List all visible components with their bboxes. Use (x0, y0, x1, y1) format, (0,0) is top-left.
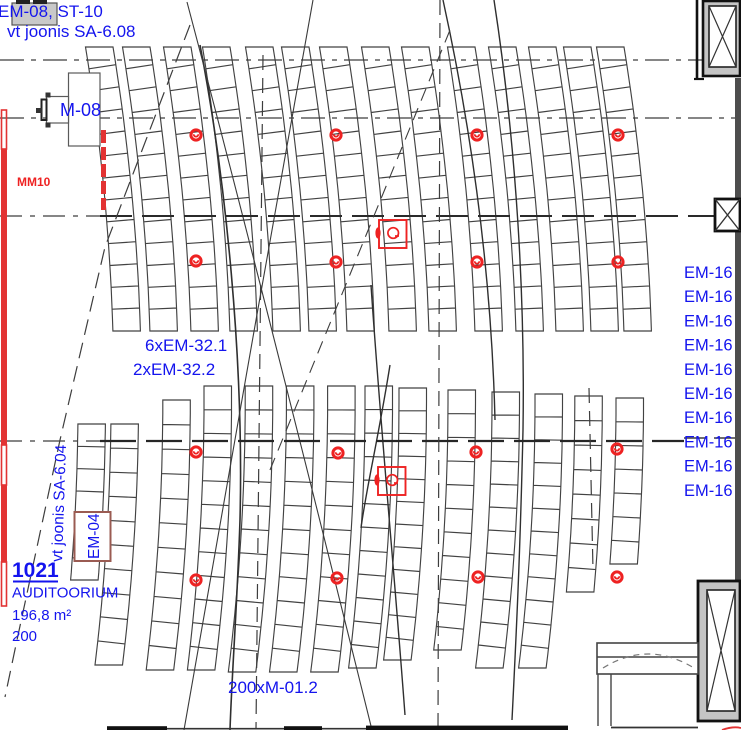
svg-text:EM-08, ST-10: EM-08, ST-10 (0, 2, 103, 21)
svg-text:2xEM-32.2: 2xEM-32.2 (133, 360, 215, 379)
svg-text:EM-16: EM-16 (684, 361, 733, 379)
svg-text:200: 200 (12, 628, 37, 645)
svg-text:M-08: M-08 (60, 100, 101, 120)
svg-text:EM-16: EM-16 (684, 385, 733, 403)
svg-text:EM-16: EM-16 (684, 482, 733, 500)
svg-text:EM-16: EM-16 (684, 264, 733, 282)
svg-text:AUDITOORIUM: AUDITOORIUM (12, 585, 118, 602)
svg-text:EM-16: EM-16 (684, 409, 733, 427)
svg-text:vt joonis SA-6.08: vt joonis SA-6.08 (7, 22, 136, 41)
svg-text:200xM-01.2: 200xM-01.2 (228, 678, 318, 697)
svg-text:EM-04: EM-04 (86, 513, 103, 559)
svg-text:MM10: MM10 (17, 175, 51, 189)
svg-text:EM-16: EM-16 (684, 337, 733, 355)
svg-text:EM-16: EM-16 (684, 458, 733, 476)
svg-text:6xEM-32.1: 6xEM-32.1 (145, 336, 227, 355)
svg-text:EM-16: EM-16 (684, 433, 733, 451)
svg-text:EM-16: EM-16 (684, 288, 733, 306)
svg-text:EM-16: EM-16 (684, 312, 733, 330)
svg-text:196,8 m²: 196,8 m² (12, 607, 71, 624)
